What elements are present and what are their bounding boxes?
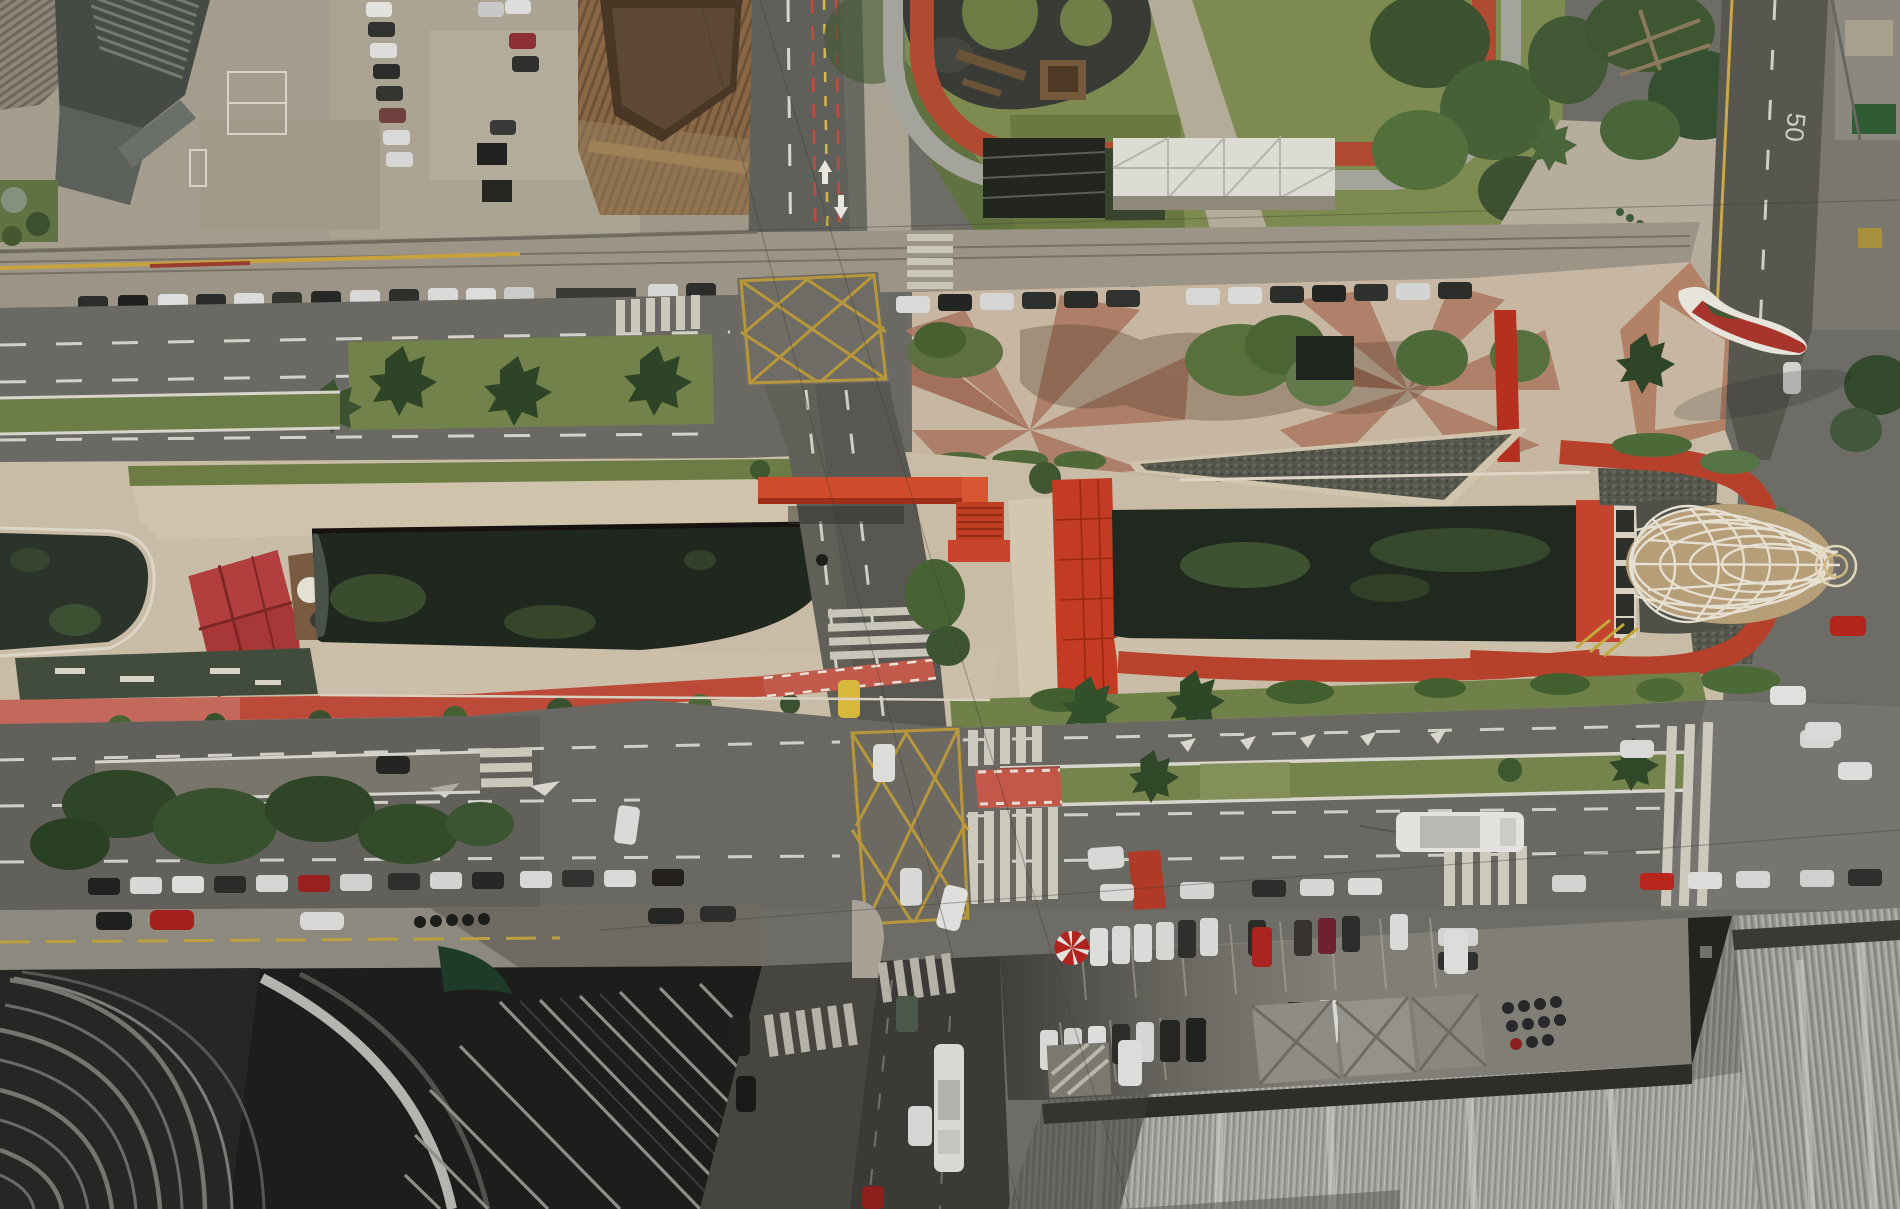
svg-text:50: 50 xyxy=(1779,111,1812,143)
